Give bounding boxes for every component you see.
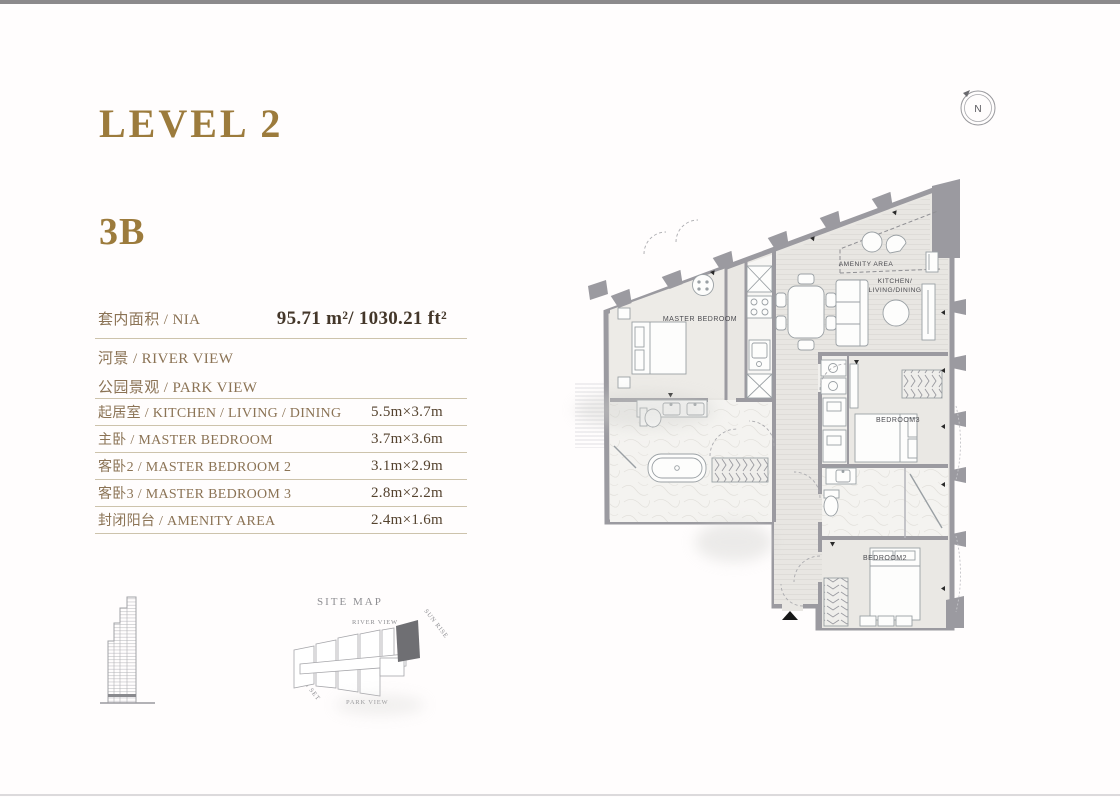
park-view-row: 公园景观 / PARK VIEW [95,368,467,397]
master-bedroom-label: MASTER BEDROOM [663,316,737,323]
bedroom3-label: BEDROOM3 [876,417,920,424]
kitchen-label-line2: LIVING/DINING [868,287,921,294]
nia-label: 套内面积 / NIA [98,308,200,329]
unit-title: 3B [99,210,145,254]
site-map-highlighted-unit [396,620,420,662]
nia-row: 套内面积 / NIA 95.71 m²/ 1030.21 ft² [95,306,467,339]
compass-n: N [974,104,981,115]
brochure-page: LEVEL 2 3B 套内面积 / NIA 95.71 m²/ 1030.21 … [0,0,1120,797]
north-compass-icon: N [952,82,1004,134]
room-dimensions-table: 起居室 / KITCHEN / LIVING / DINING 5.5m×3.7… [95,398,467,534]
river-view-label: RIVER VIEW [352,619,398,626]
table-row: 客卧2 / MASTER BEDROOM 2 3.1m×2.9m [95,453,467,480]
building-elevation [98,593,158,725]
watermark-smudge [335,695,425,715]
top-border-bar [0,0,1120,4]
room-size: 5.5m×3.7m [371,404,467,421]
table-row: 封闭阳台 / AMENITY AREA 2.4m×1.6m [95,507,467,534]
room-size: 3.1m×2.9m [371,458,467,475]
nia-value: 95.71 m²/ 1030.21 ft² [277,308,467,330]
room-size: 3.7m×3.6m [371,431,467,448]
room-size: 2.4m×1.6m [371,512,467,529]
tv-console [922,284,935,340]
unit-info-block: 套内面积 / NIA 95.71 m²/ 1030.21 ft² 河景 / RI… [95,306,467,397]
table-row: 主卧 / MASTER BEDROOM 3.7m×3.6m [95,426,467,453]
sofa [836,280,868,346]
tower-silhouette [108,597,136,703]
page-title: LEVEL 2 [99,100,283,147]
kitchen-label-line1: KITCHEN/ [878,278,913,285]
site-map-title: SITE MAP [317,596,383,608]
table-row: 客卧3 / MASTER BEDROOM 3 2.8m×2.2m [95,480,467,507]
amenity-area-label: AMENITY AREA [839,261,894,268]
armchair-icon [693,275,714,296]
table-row: 起居室 / KITCHEN / LIVING / DINING 5.5m×3.7… [95,399,467,426]
room-label: 主卧 / MASTER BEDROOM [95,429,273,449]
room-size: 2.8m×2.2m [371,485,467,502]
room-label: 起居室 / KITCHEN / LIVING / DINING [95,402,341,422]
laundry-units [821,360,846,462]
tower-base-band [108,694,136,697]
river-view-row: 河景 / RIVER VIEW [95,339,467,368]
room-label: 客卧3 / MASTER BEDROOM 3 [95,483,291,503]
sun-rise-label: SUN RISE [422,608,449,640]
room-label: 客卧2 / MASTER BEDROOM 2 [95,456,291,476]
coffee-table [883,300,909,326]
watermark-smudge [575,392,715,428]
room-label: 封闭阳台 / AMENITY AREA [95,510,275,530]
entrance-gap [782,601,803,611]
entrance-arrow [782,611,798,620]
bedroom2-label: BEDROOM2 [863,555,907,562]
watermark-smudge [695,522,773,562]
corner-wall-block [932,179,960,258]
bottom-border-line [0,794,1120,796]
